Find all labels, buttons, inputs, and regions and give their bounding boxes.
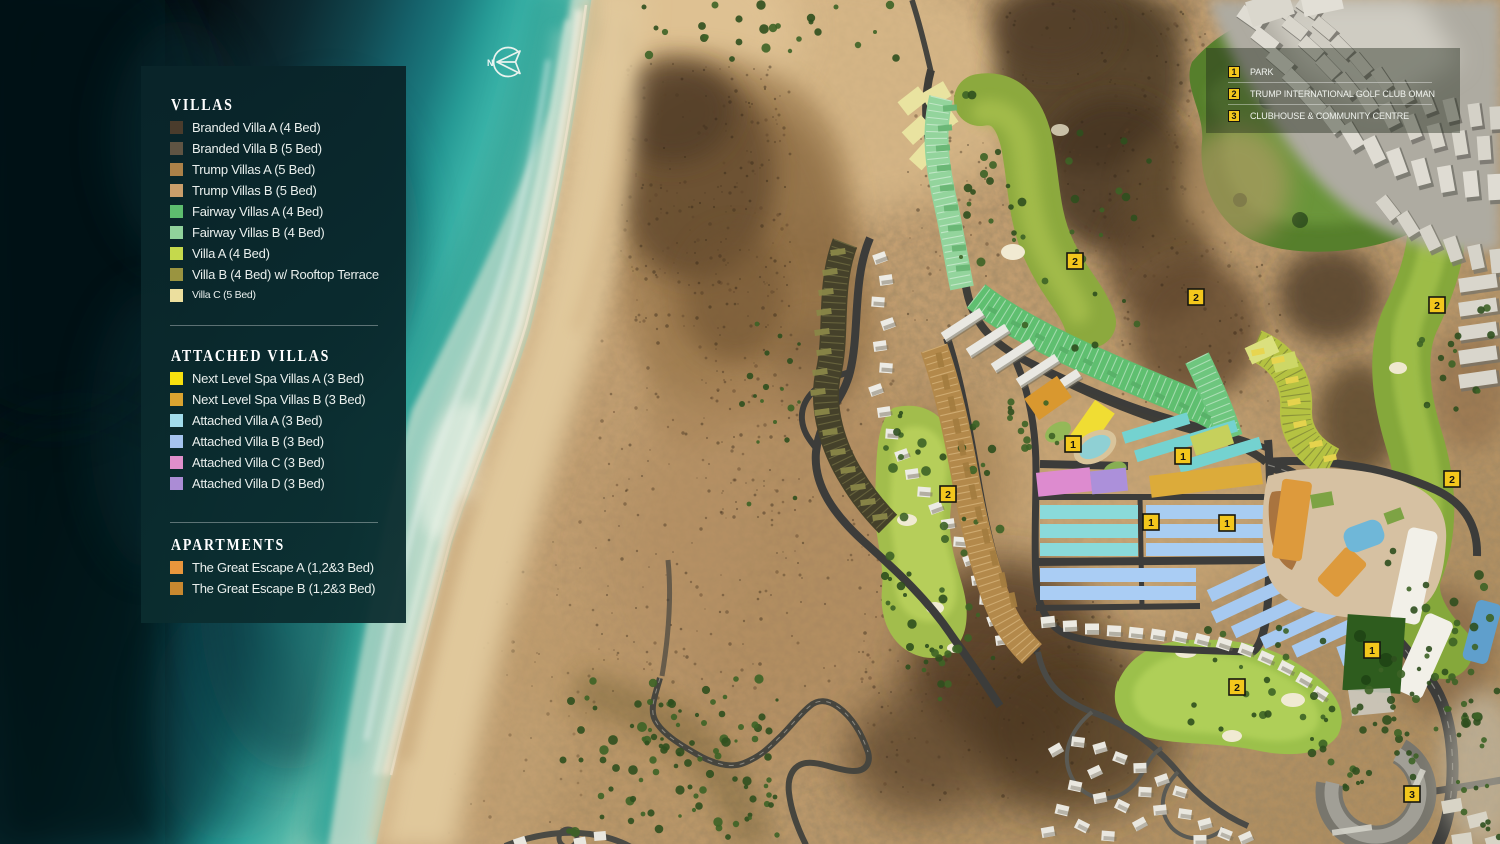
svg-text:3: 3 [1409,789,1415,801]
svg-text:2: 2 [1434,300,1440,312]
svg-text:1: 1 [1180,451,1186,463]
svg-text:2: 2 [1234,682,1240,694]
svg-text:1: 1 [1224,518,1230,530]
svg-text:N: N [487,58,494,68]
svg-text:1: 1 [1148,517,1154,529]
svg-text:1: 1 [1070,439,1076,451]
svg-text:1: 1 [1369,645,1375,657]
svg-text:2: 2 [1072,256,1078,268]
svg-text:2: 2 [945,489,951,501]
svg-text:2: 2 [1449,474,1455,486]
svg-text:2: 2 [1193,292,1199,304]
